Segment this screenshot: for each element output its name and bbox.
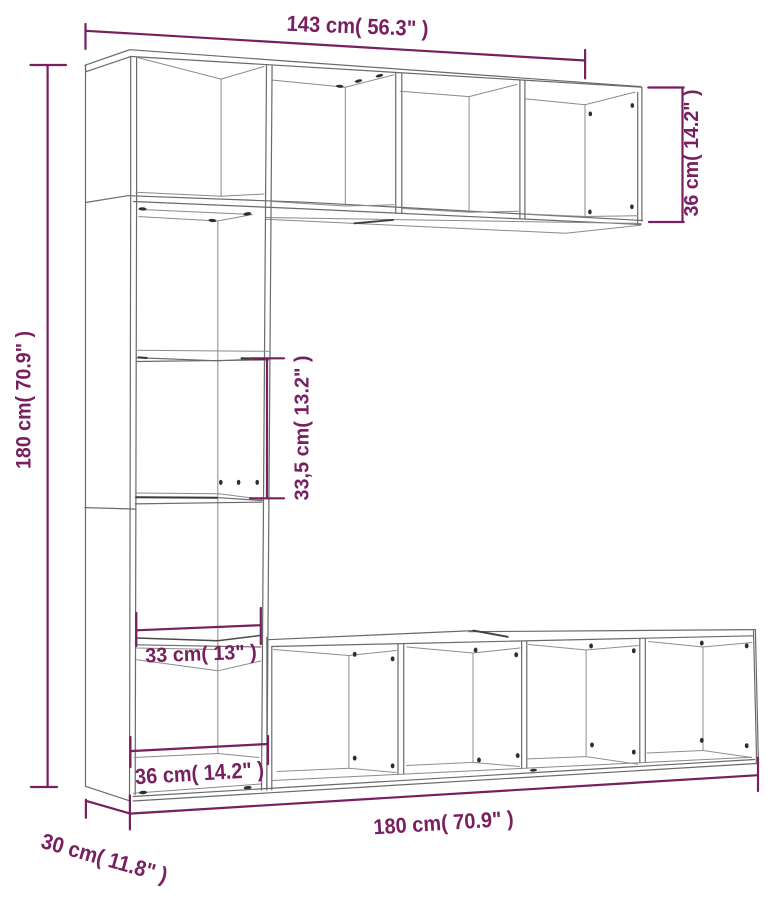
- svg-text:180 cm( 70.9" ): 180 cm( 70.9" ): [12, 331, 36, 469]
- svg-text:36 cm( 14.2" ): 36 cm( 14.2" ): [680, 90, 703, 217]
- svg-text:33 cm( 13" ): 33 cm( 13" ): [145, 641, 257, 668]
- svg-text:33,5 cm( 13.2" ): 33,5 cm( 13.2" ): [292, 356, 314, 501]
